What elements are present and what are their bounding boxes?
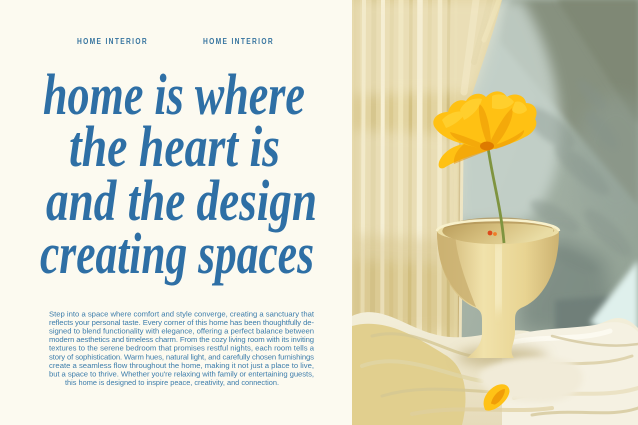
svg-text:creating spaces: creating spaces	[40, 221, 314, 286]
svg-text:this home is designed to inspi: this home is designed to inspire peace, …	[65, 378, 279, 387]
svg-text:HOME INTERIOR: HOME INTERIOR	[203, 37, 274, 46]
svg-text:HOME INTERIOR: HOME INTERIOR	[77, 37, 148, 46]
